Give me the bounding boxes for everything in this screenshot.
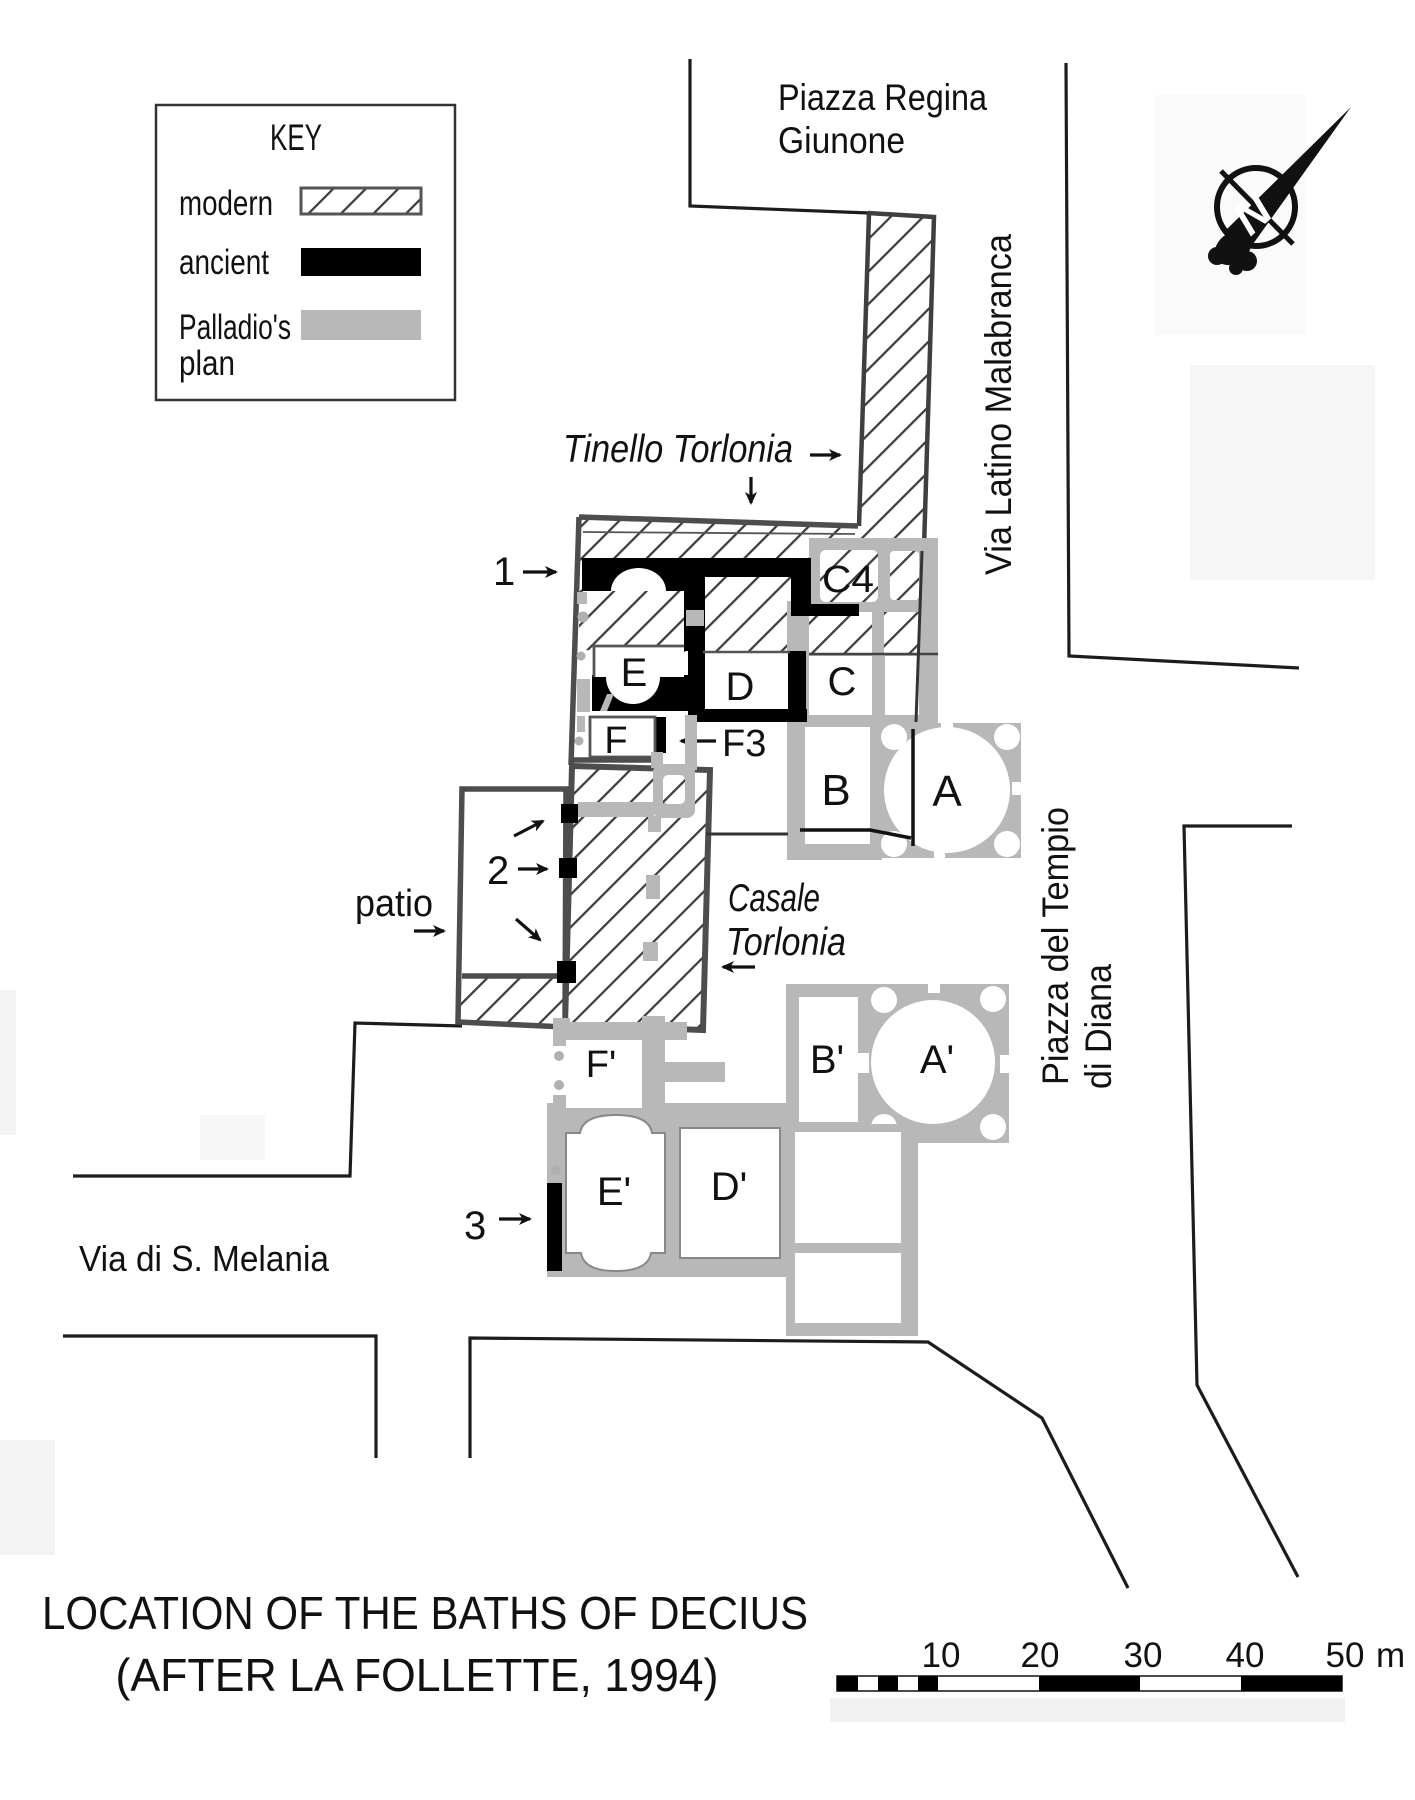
svg-text:1: 1: [493, 550, 515, 594]
svg-text:A: A: [932, 767, 962, 816]
svg-text:F: F: [604, 720, 627, 762]
svg-text:C: C: [828, 660, 857, 704]
svg-text:30: 30: [1124, 1636, 1163, 1675]
svg-text:40: 40: [1226, 1636, 1265, 1675]
svg-text:(AFTER LA FOLLETTE, 1994): (AFTER LA FOLLETTE, 1994): [116, 1649, 719, 1701]
svg-text:F3: F3: [722, 723, 766, 765]
svg-text:D: D: [726, 665, 755, 709]
svg-text:Tinello Torlonia: Tinello Torlonia: [563, 428, 793, 471]
svg-text:B: B: [821, 766, 850, 815]
svg-text:Piazza Regina: Piazza Regina: [778, 77, 987, 118]
svg-text:di Diana: di Diana: [1078, 964, 1119, 1089]
svg-text:F': F': [586, 1044, 616, 1086]
svg-text:E': E': [597, 1170, 631, 1214]
svg-text:20: 20: [1021, 1636, 1060, 1675]
svg-text:E: E: [621, 651, 648, 695]
svg-text:m: m: [1376, 1636, 1405, 1675]
svg-text:Casale: Casale: [728, 877, 820, 920]
svg-text:D': D': [711, 1165, 748, 1209]
svg-text:ancient: ancient: [179, 243, 269, 282]
svg-text:Torlonia: Torlonia: [726, 921, 846, 964]
svg-text:Via Latino Malabranca: Via Latino Malabranca: [978, 234, 1019, 575]
svg-text:10: 10: [922, 1636, 961, 1675]
svg-text:2: 2: [487, 849, 509, 893]
svg-text:modern: modern: [179, 184, 273, 223]
svg-text:plan: plan: [179, 344, 235, 383]
svg-text:3: 3: [464, 1204, 486, 1248]
svg-text:B': B': [810, 1038, 844, 1082]
svg-text:C4: C4: [822, 559, 874, 601]
svg-text:LOCATION OF THE BATHS OF DECIU: LOCATION OF THE BATHS OF DECIUS: [42, 1587, 808, 1639]
svg-text:Palladio's: Palladio's: [179, 308, 291, 347]
svg-text:KEY: KEY: [270, 117, 322, 158]
svg-text:50: 50: [1326, 1636, 1365, 1675]
svg-text:patio: patio: [355, 883, 433, 925]
svg-text:Via di S. Melania: Via di S. Melania: [79, 1238, 330, 1279]
svg-text:Giunone: Giunone: [778, 120, 905, 161]
svg-text:Piazza del Tempio: Piazza del Tempio: [1035, 807, 1076, 1085]
svg-text:A': A': [920, 1038, 954, 1082]
